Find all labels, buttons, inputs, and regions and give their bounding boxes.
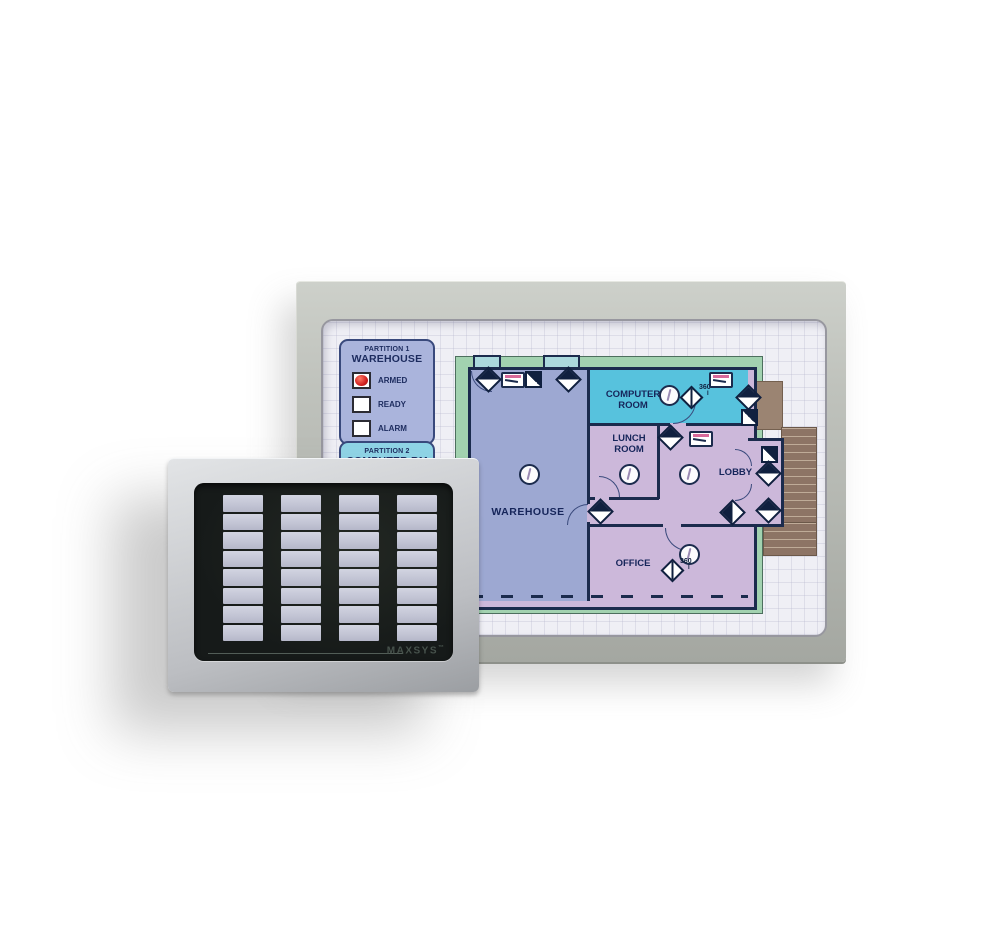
zone-button-cell bbox=[397, 588, 437, 605]
button-strips bbox=[223, 495, 437, 641]
zone-button-cell bbox=[281, 569, 321, 586]
zone-button-cell bbox=[281, 532, 321, 549]
floorplan: WAREHOUSE COMPUTER ROOM LUNCH ROOM LOBBY… bbox=[453, 354, 823, 616]
zone-button-cell bbox=[397, 551, 437, 568]
ready-led bbox=[352, 396, 371, 413]
wall bbox=[587, 370, 590, 601]
keypad-station-icon bbox=[709, 372, 733, 388]
product-photo: PARTITION 1 WAREHOUSE ARMED READY ALARM … bbox=[0, 0, 1000, 925]
keypad-face: MAXSYS™ bbox=[194, 483, 453, 661]
entrance-steps-lower bbox=[763, 522, 817, 556]
zone-button-cell bbox=[223, 588, 263, 605]
zone-button-cell bbox=[397, 569, 437, 586]
dashed-wall bbox=[471, 595, 748, 598]
zone-button-cell bbox=[397, 625, 437, 642]
zone-button-cell bbox=[339, 532, 379, 549]
alarm-led bbox=[352, 420, 371, 437]
zone-button-cell bbox=[339, 606, 379, 623]
zone-button-cell bbox=[339, 625, 379, 642]
partition-1-title: PARTITION 1 bbox=[341, 346, 433, 353]
motion-detector-icon bbox=[619, 464, 640, 485]
motion-detector-icon bbox=[679, 464, 700, 485]
zone-button-cell bbox=[339, 551, 379, 568]
zone-button-cell bbox=[223, 625, 263, 642]
partition-2-title: PARTITION 2 bbox=[341, 448, 433, 455]
zone-button-cell bbox=[281, 514, 321, 531]
zone-button-cell bbox=[397, 532, 437, 549]
corner-sensor-icon bbox=[525, 371, 542, 388]
motion-detector-icon bbox=[519, 464, 540, 485]
zone-button-cell bbox=[397, 606, 437, 623]
label-warehouse: WAREHOUSE bbox=[473, 507, 583, 518]
zone-button-cell bbox=[339, 588, 379, 605]
angle-label: 360I bbox=[680, 558, 692, 572]
label-office: OFFICE bbox=[598, 558, 668, 569]
ready-label: READY bbox=[378, 400, 406, 409]
partition-1-status-box: PARTITION 1 WAREHOUSE ARMED READY ALARM bbox=[339, 339, 435, 445]
armed-label: ARMED bbox=[378, 376, 407, 385]
zone-button-cell bbox=[281, 588, 321, 605]
zone-button-cell bbox=[397, 514, 437, 531]
zone-button-cell bbox=[281, 551, 321, 568]
zone-button-cell bbox=[397, 495, 437, 512]
button-column bbox=[223, 495, 263, 641]
keypad-station-icon bbox=[501, 372, 525, 388]
zone-button-cell bbox=[281, 606, 321, 623]
indicator-row: READY bbox=[352, 396, 433, 413]
zone-button-cell bbox=[223, 551, 263, 568]
zone-button-cell bbox=[223, 606, 263, 623]
zone-button-cell bbox=[339, 514, 379, 531]
motion-detector-icon bbox=[659, 385, 680, 406]
keypad-station-icon bbox=[689, 431, 713, 447]
indicator-row: ALARM bbox=[352, 420, 433, 437]
alarm-label: ALARM bbox=[378, 424, 407, 433]
label-lunch-room: LUNCH ROOM bbox=[599, 433, 659, 455]
corner-sensor-icon bbox=[741, 409, 758, 426]
indicator-row: ARMED bbox=[352, 372, 433, 389]
zone-button-cell bbox=[223, 495, 263, 512]
maxsys-annunciator-keypad: MAXSYS™ bbox=[168, 458, 479, 692]
brand-logo: MAXSYS™ bbox=[387, 645, 444, 656]
zone-button-cell bbox=[339, 495, 379, 512]
armed-led bbox=[352, 372, 371, 389]
zone-button-cell bbox=[281, 625, 321, 642]
partition-1-name: WAREHOUSE bbox=[341, 353, 433, 365]
zone-button-cell bbox=[339, 569, 379, 586]
button-column bbox=[281, 495, 321, 641]
zone-button-cell bbox=[223, 569, 263, 586]
button-column bbox=[397, 495, 437, 641]
button-column bbox=[339, 495, 379, 641]
zone-button-cell bbox=[223, 514, 263, 531]
zone-button-cell bbox=[281, 495, 321, 512]
brand-underline bbox=[208, 653, 403, 654]
door-opening bbox=[663, 524, 681, 527]
zone-button-cell bbox=[223, 532, 263, 549]
room-warehouse bbox=[471, 370, 589, 601]
